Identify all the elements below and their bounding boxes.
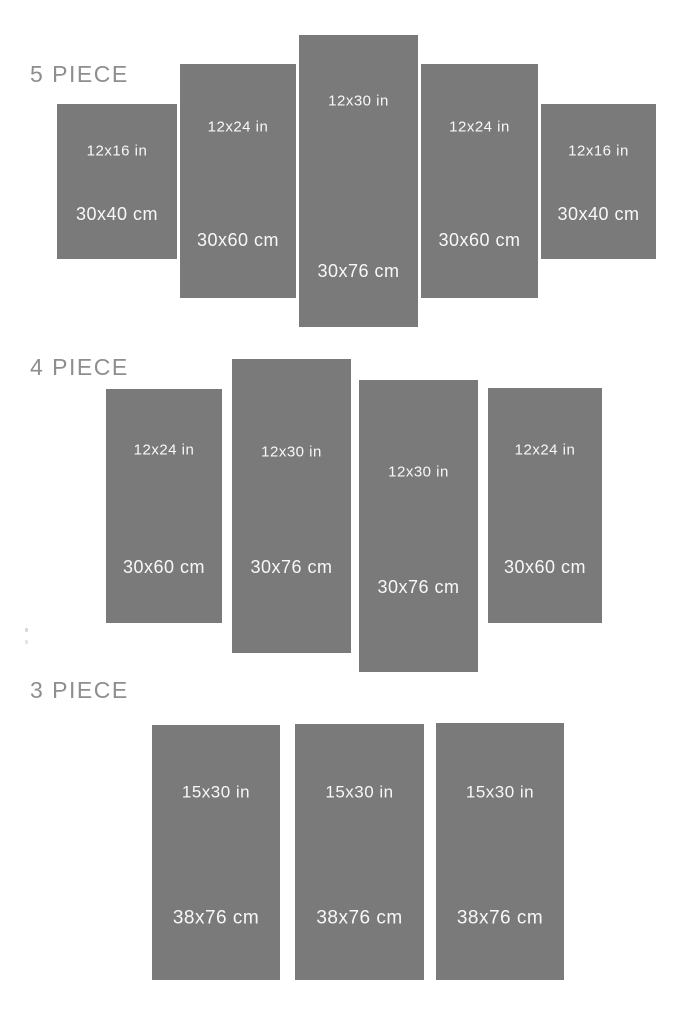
- canvas-panel: 12x16 in 30x40 cm: [57, 104, 177, 259]
- panel-size-inches: 12x24 in: [421, 120, 538, 135]
- artifact-dot: [25, 628, 28, 632]
- canvas-panel: 12x24 in 30x60 cm: [106, 389, 222, 623]
- panel-size-inches: 12x24 in: [180, 120, 296, 135]
- panel-size-inches: 15x30 in: [295, 784, 424, 801]
- panel-size-cm: 38x76 cm: [295, 909, 424, 928]
- canvas-panel: 12x30 in 30x76 cm: [299, 35, 418, 327]
- panel-size-cm: 30x76 cm: [232, 558, 351, 576]
- panel-size-inches: 15x30 in: [436, 784, 564, 801]
- panel-size-cm: 30x60 cm: [180, 231, 296, 249]
- section-title-5-piece: 5 PIECE: [30, 63, 129, 86]
- panel-size-cm: 30x76 cm: [359, 578, 478, 596]
- panel-size-cm: 38x76 cm: [152, 909, 280, 928]
- canvas-panel: 12x24 in 30x60 cm: [180, 64, 296, 298]
- section-title-4-piece: 4 PIECE: [30, 356, 129, 379]
- panel-size-inches: 15x30 in: [152, 784, 280, 801]
- canvas-panel: 15x30 in 38x76 cm: [295, 724, 424, 980]
- panel-size-cm: 30x60 cm: [421, 231, 538, 249]
- panel-size-inches: 12x30 in: [359, 465, 478, 480]
- section-title-3-piece: 3 PIECE: [30, 679, 129, 702]
- panel-size-inches: 12x30 in: [232, 445, 351, 460]
- canvas-size-chart: 5 PIECE 12x16 in 30x40 cm 12x24 in 30x60…: [0, 0, 700, 1024]
- canvas-panel: 12x24 in 30x60 cm: [421, 64, 538, 298]
- panel-size-inches: 12x24 in: [488, 443, 602, 458]
- canvas-panel: 12x16 in 30x40 cm: [541, 104, 656, 259]
- panel-size-cm: 30x60 cm: [488, 558, 602, 576]
- artifact-dot: [25, 640, 28, 644]
- panel-size-inches: 12x24 in: [106, 443, 222, 458]
- canvas-panel: 15x30 in 38x76 cm: [436, 723, 564, 980]
- panel-size-inches: 12x16 in: [57, 144, 177, 159]
- panel-size-cm: 30x40 cm: [541, 205, 656, 223]
- panel-size-cm: 30x76 cm: [299, 262, 418, 280]
- panel-size-inches: 12x16 in: [541, 144, 656, 159]
- canvas-panel: 12x30 in 30x76 cm: [232, 359, 351, 653]
- panel-size-cm: 38x76 cm: [436, 909, 564, 928]
- panel-size-cm: 30x40 cm: [57, 205, 177, 223]
- panel-size-inches: 12x30 in: [299, 94, 418, 109]
- canvas-panel: 15x30 in 38x76 cm: [152, 725, 280, 980]
- canvas-panel: 12x30 in 30x76 cm: [359, 380, 478, 672]
- panel-size-cm: 30x60 cm: [106, 558, 222, 576]
- canvas-panel: 12x24 in 30x60 cm: [488, 388, 602, 623]
